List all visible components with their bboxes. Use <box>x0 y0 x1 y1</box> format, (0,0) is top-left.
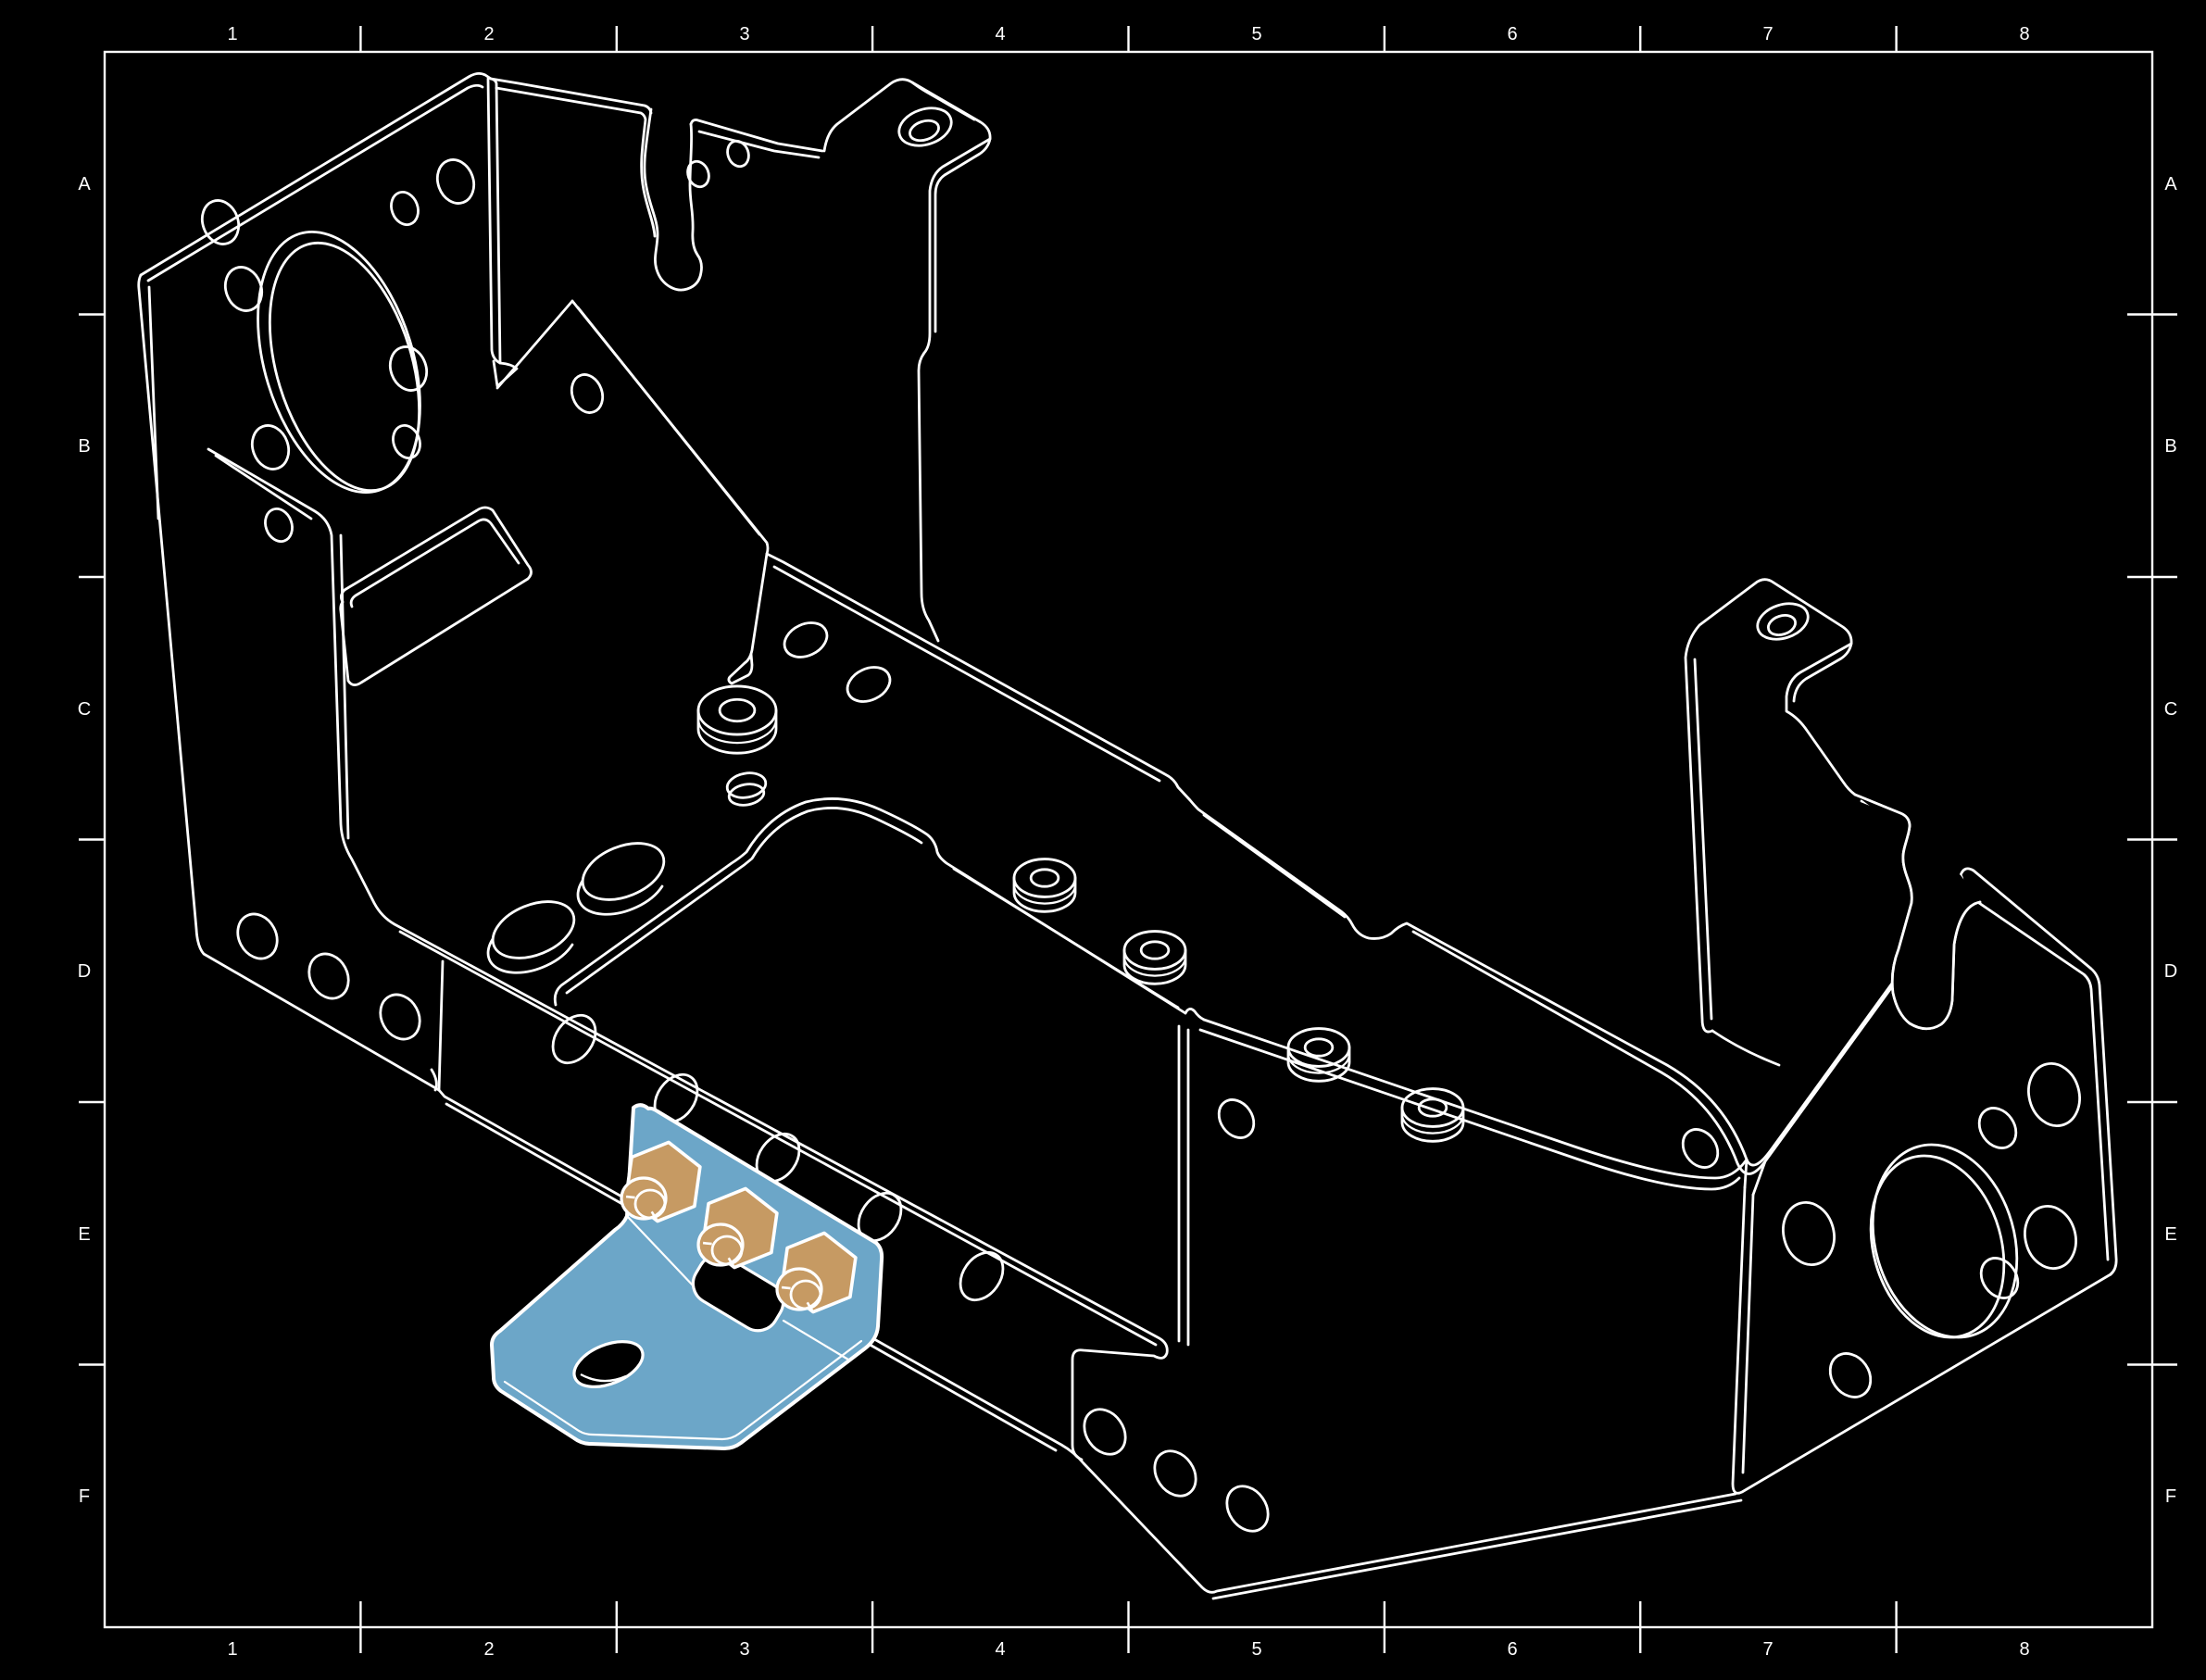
svg-text:A: A <box>2164 174 2177 194</box>
svg-text:8: 8 <box>2019 24 2029 44</box>
svg-text:E: E <box>78 1224 90 1245</box>
svg-text:5: 5 <box>1251 24 1261 44</box>
svg-text:2: 2 <box>483 24 494 44</box>
svg-text:7: 7 <box>1762 24 1773 44</box>
svg-text:B: B <box>2164 436 2176 457</box>
svg-text:3: 3 <box>739 1639 749 1660</box>
svg-text:A: A <box>78 174 91 194</box>
svg-text:E: E <box>2164 1224 2176 1245</box>
svg-text:1: 1 <box>227 1639 237 1660</box>
svg-text:1: 1 <box>227 24 237 44</box>
svg-text:8: 8 <box>2019 1639 2029 1660</box>
svg-text:C: C <box>2164 699 2177 720</box>
svg-text:F: F <box>2165 1486 2176 1507</box>
svg-text:3: 3 <box>739 24 749 44</box>
svg-text:C: C <box>78 699 91 720</box>
svg-text:2: 2 <box>483 1639 494 1660</box>
svg-text:6: 6 <box>1507 1639 1517 1660</box>
svg-text:D: D <box>2164 961 2177 982</box>
svg-text:7: 7 <box>1762 1639 1773 1660</box>
svg-text:B: B <box>78 436 90 457</box>
svg-text:D: D <box>78 961 91 982</box>
svg-text:F: F <box>79 1486 90 1507</box>
svg-text:5: 5 <box>1251 1639 1261 1660</box>
svg-text:4: 4 <box>995 1639 1005 1660</box>
svg-text:4: 4 <box>995 24 1005 44</box>
svg-text:6: 6 <box>1507 24 1517 44</box>
